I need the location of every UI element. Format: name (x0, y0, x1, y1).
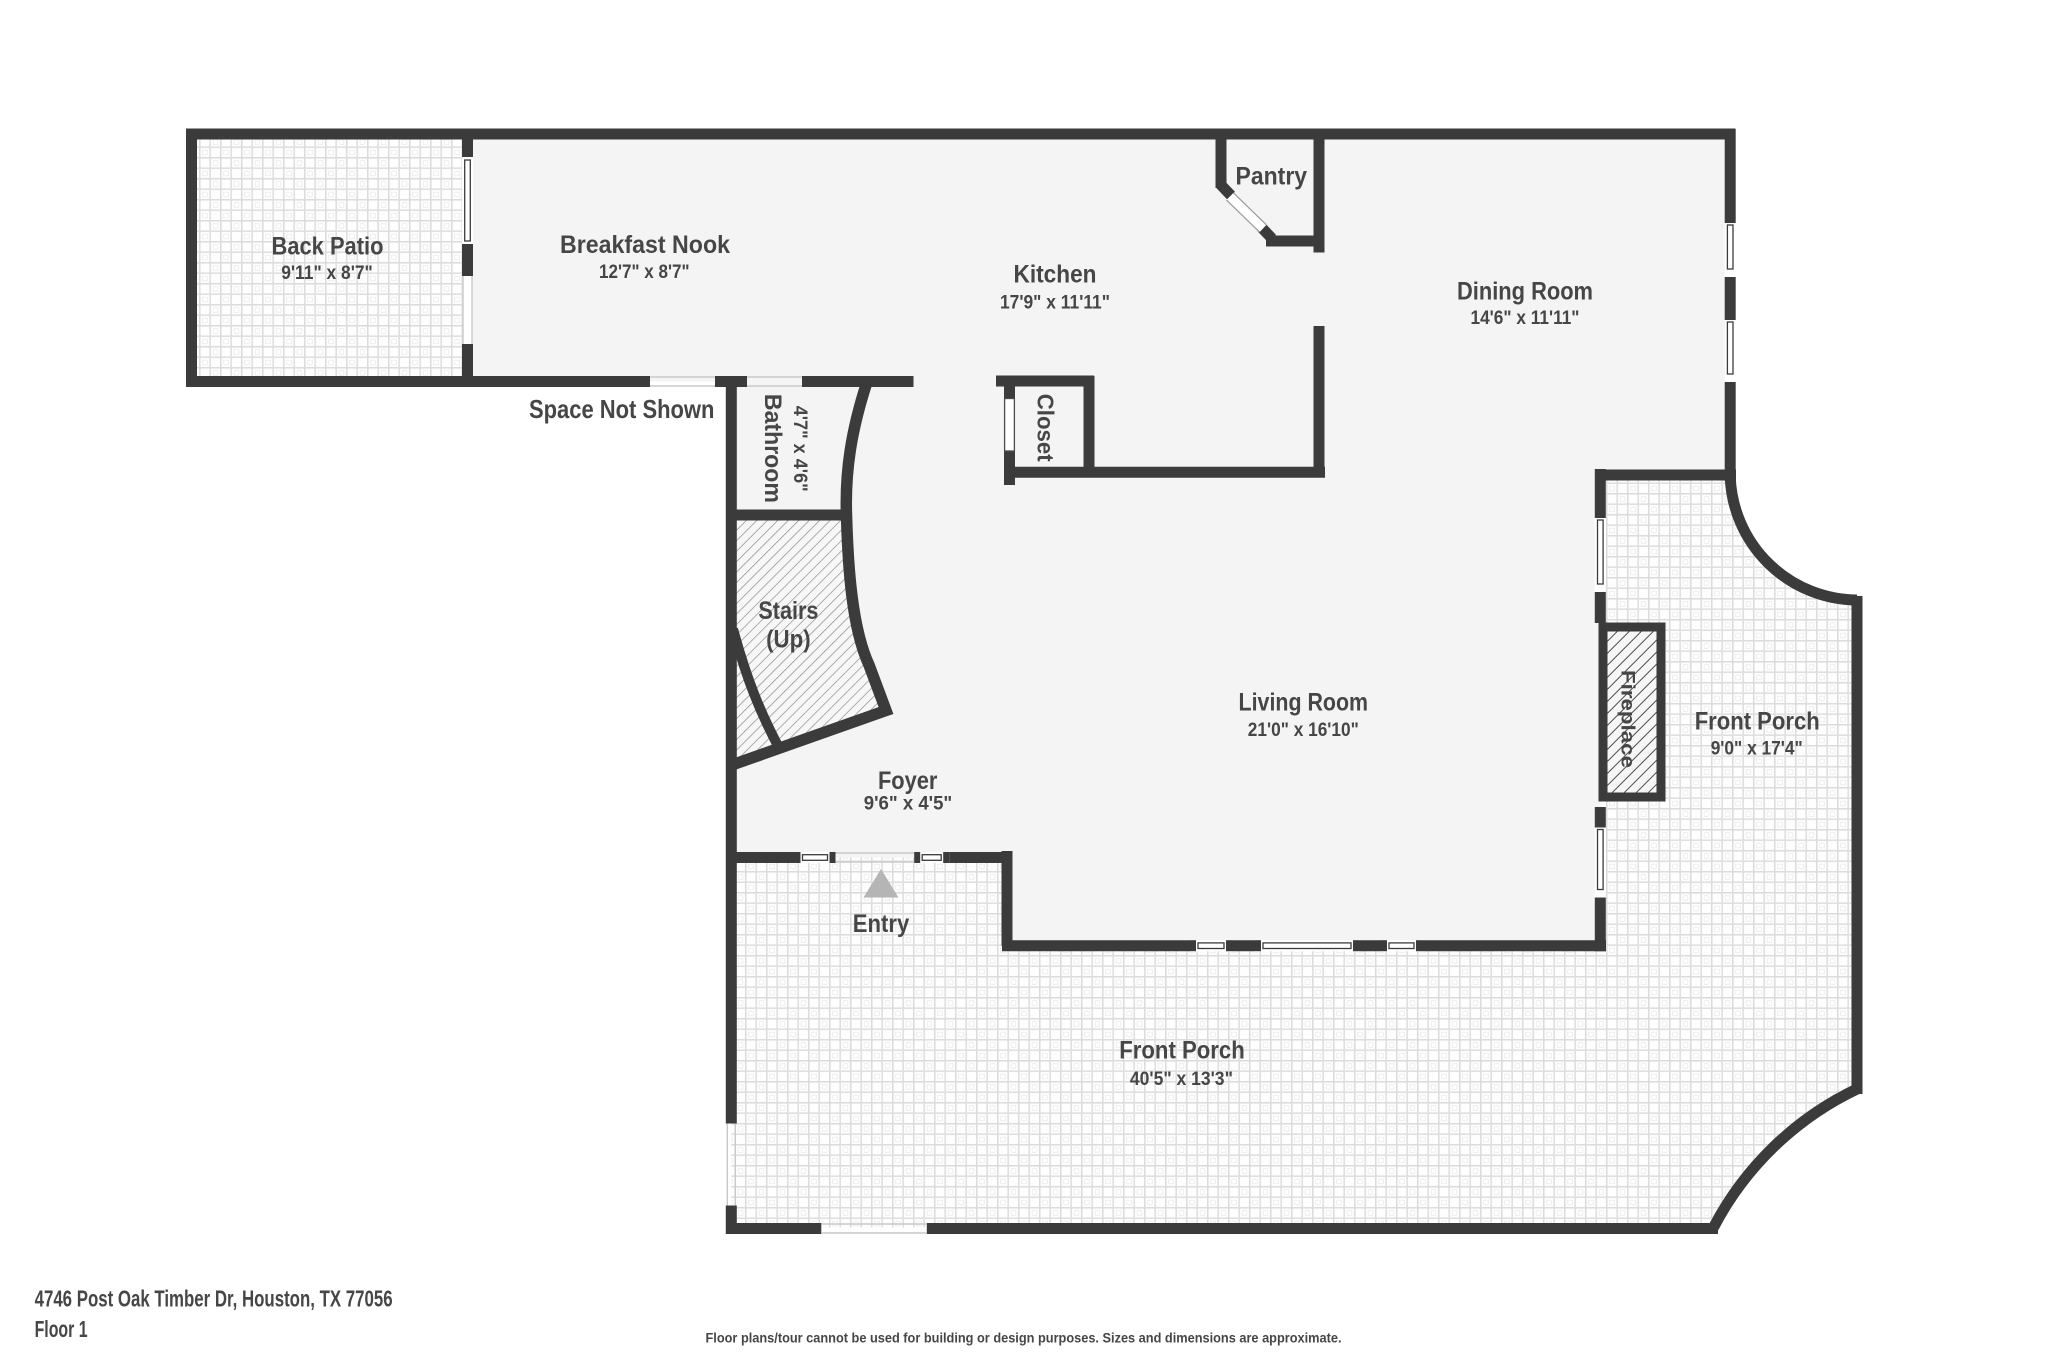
svg-text:Entry: Entry (853, 910, 910, 938)
svg-text:(Up): (Up) (766, 626, 811, 654)
svg-text:Foyer: Foyer (878, 767, 938, 795)
svg-text:Living Room: Living Room (1239, 688, 1369, 716)
svg-text:12'7" x 8'7": 12'7" x 8'7" (599, 262, 690, 283)
svg-text:Closet: Closet (1033, 394, 1059, 462)
svg-text:Space Not Shown: Space Not Shown (529, 394, 715, 424)
svg-text:14'6" x 11'11": 14'6" x 11'11" (1471, 308, 1580, 329)
svg-text:Bathroom: Bathroom (759, 394, 786, 503)
svg-text:Kitchen: Kitchen (1014, 261, 1097, 289)
svg-text:Front Porch: Front Porch (1695, 707, 1820, 735)
svg-text:Pantry: Pantry (1236, 163, 1308, 191)
svg-text:9'11" x 8'7": 9'11" x 8'7" (281, 263, 373, 284)
svg-text:Floor plans/tour cannot be use: Floor plans/tour cannot be used for buil… (706, 1329, 1342, 1345)
svg-text:Fireplace: Fireplace (1617, 670, 1638, 768)
svg-text:Stairs: Stairs (758, 597, 818, 625)
svg-text:4746 Post Oak Timber Dr, Houst: 4746 Post Oak Timber Dr, Houston, TX 770… (35, 1286, 393, 1312)
svg-text:4'7" x 4'6": 4'7" x 4'6" (789, 406, 810, 492)
svg-text:17'9" x 11'11": 17'9" x 11'11" (1000, 293, 1110, 314)
svg-text:Back Patio: Back Patio (272, 233, 384, 261)
svg-text:9'0" x 17'4": 9'0" x 17'4" (1711, 739, 1803, 760)
svg-text:Dining Room: Dining Room (1457, 278, 1593, 306)
svg-text:9'6" x 4'5": 9'6" x 4'5" (864, 794, 953, 815)
svg-text:Breakfast Nook: Breakfast Nook (560, 231, 730, 259)
svg-text:Front Porch: Front Porch (1119, 1037, 1245, 1065)
svg-text:40'5" x 13'3": 40'5" x 13'3" (1130, 1069, 1233, 1090)
svg-text:21'0" x 16'10": 21'0" x 16'10" (1248, 720, 1359, 741)
svg-text:Floor 1: Floor 1 (35, 1316, 88, 1342)
